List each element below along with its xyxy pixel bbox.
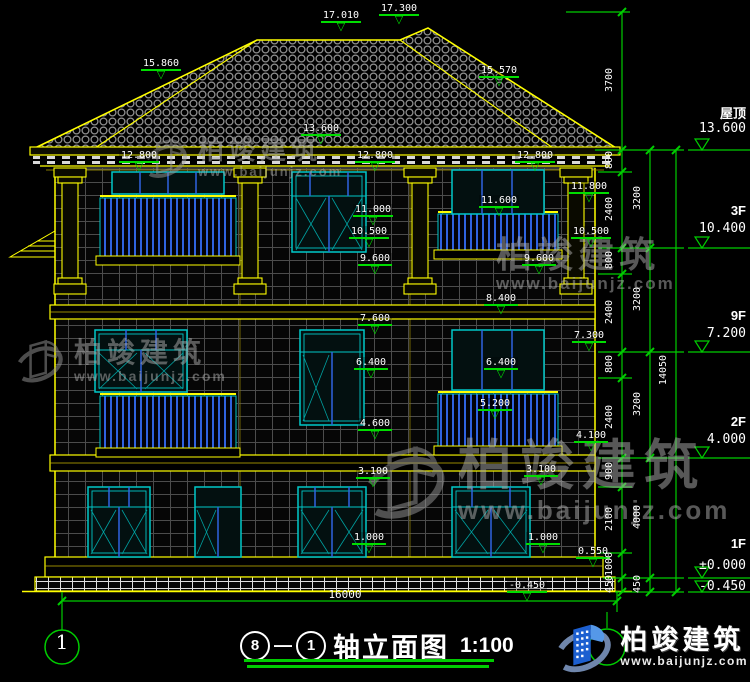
watermark-logo-icon bbox=[12, 334, 66, 388]
roof bbox=[35, 28, 616, 148]
watermark: 柏竣建筑 www.baijunjz.com bbox=[496, 236, 675, 294]
overall-dimension-label: 16000 bbox=[295, 588, 395, 601]
brand-logo: 柏竣建筑 www.baijunjz.com bbox=[552, 616, 748, 678]
title-scale: 1:100 bbox=[460, 634, 514, 658]
watermark-brand: 柏竣建筑 bbox=[458, 438, 730, 495]
axis-bubble-1: 1 bbox=[45, 630, 79, 664]
watermark-site: www.baijunjz.com bbox=[458, 495, 730, 526]
brand-logo-icon bbox=[552, 616, 614, 678]
watermark-site: www.baijunjz.com bbox=[496, 274, 675, 294]
watermark-site: www.baijunjz.com bbox=[198, 164, 342, 179]
watermark-logo-icon bbox=[140, 133, 190, 183]
title-axis-bubble-8: 8 bbox=[240, 631, 270, 661]
title-axis-bubble-1: 1 bbox=[296, 631, 326, 661]
watermark: 柏竣建筑 www.baijunjz.com bbox=[140, 133, 342, 183]
watermark-site: www.baijunjz.com bbox=[74, 368, 227, 384]
watermark-brand: 柏竣建筑 bbox=[198, 137, 342, 164]
cad-elevation-drawing: 柏竣建筑 www.baijunjz.com 柏竣建筑 www.baijunjz.… bbox=[0, 0, 750, 682]
side-canopy bbox=[10, 231, 55, 257]
watermark-brand: 柏竣建筑 bbox=[496, 236, 675, 274]
brand-name: 柏竣建筑 bbox=[620, 626, 748, 654]
title-underline bbox=[247, 665, 489, 668]
drawing-title: 8 — 1 轴立面图 1:100 bbox=[240, 626, 514, 665]
title-dash: — bbox=[274, 635, 292, 656]
title-underline bbox=[244, 659, 494, 662]
watermark: 柏竣建筑 www.baijunjz.com bbox=[12, 334, 227, 388]
watermark-brand: 柏竣建筑 bbox=[74, 338, 227, 367]
watermark-logo-icon bbox=[358, 436, 450, 528]
brand-site: www.baijunjz.com bbox=[620, 654, 748, 668]
watermark: 柏竣建筑 www.baijunjz.com bbox=[358, 436, 730, 528]
